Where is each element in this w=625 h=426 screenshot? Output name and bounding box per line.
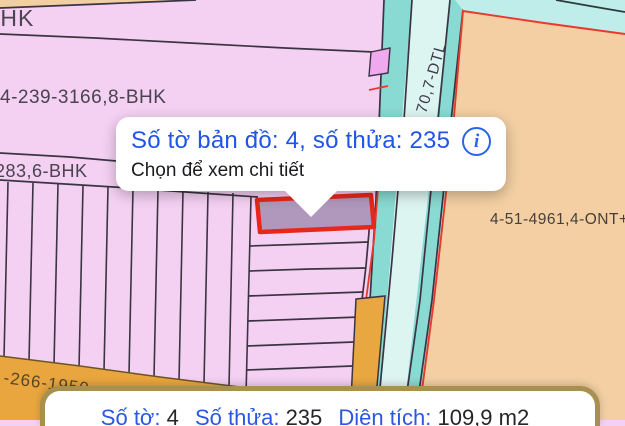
- parcel-label-large: 4-239-3166,8-BHK: [0, 87, 166, 108]
- popup-title: Số tờ bản đồ: 4, số thửa: 235: [131, 125, 450, 157]
- area-label: Diện tích:: [338, 405, 431, 426]
- bottom-sheet-summary: Số tờ: 4 Số thửa: 235 Diện tích: 109,9 m…: [45, 405, 595, 426]
- popup-subtitle: Chọn để xem chi tiết: [131, 159, 491, 183]
- sheet-number-value: 4: [167, 405, 179, 426]
- parcel-number-value: 235: [286, 405, 323, 426]
- parcel-number-label: Số thửa:: [195, 405, 279, 426]
- bottom-sheet[interactable]: Số tờ: 4 Số thửa: 235 Diện tích: 109,9 m…: [40, 386, 600, 426]
- parcel-magenta-small[interactable]: [369, 48, 390, 76]
- info-icon[interactable]: i: [462, 127, 491, 156]
- parcel-label-top-left: BHK: [0, 5, 34, 31]
- info-icon-glyph: i: [474, 132, 479, 151]
- popup-title-row: Số tờ bản đồ: 4, số thửa: 235 i: [131, 125, 491, 157]
- parcel-label-right: 4-51-4961,4-ONT+C: [490, 211, 625, 228]
- parcel-info-popup[interactable]: Số tờ bản đồ: 4, số thửa: 235 i Chọn để …: [116, 117, 506, 191]
- sheet-number-label: Số tờ:: [101, 405, 161, 426]
- parcel-label-band: 283,6-BHK: [0, 161, 88, 181]
- area-value: 109,9 m2: [437, 405, 529, 426]
- popup-arrow: [284, 190, 338, 217]
